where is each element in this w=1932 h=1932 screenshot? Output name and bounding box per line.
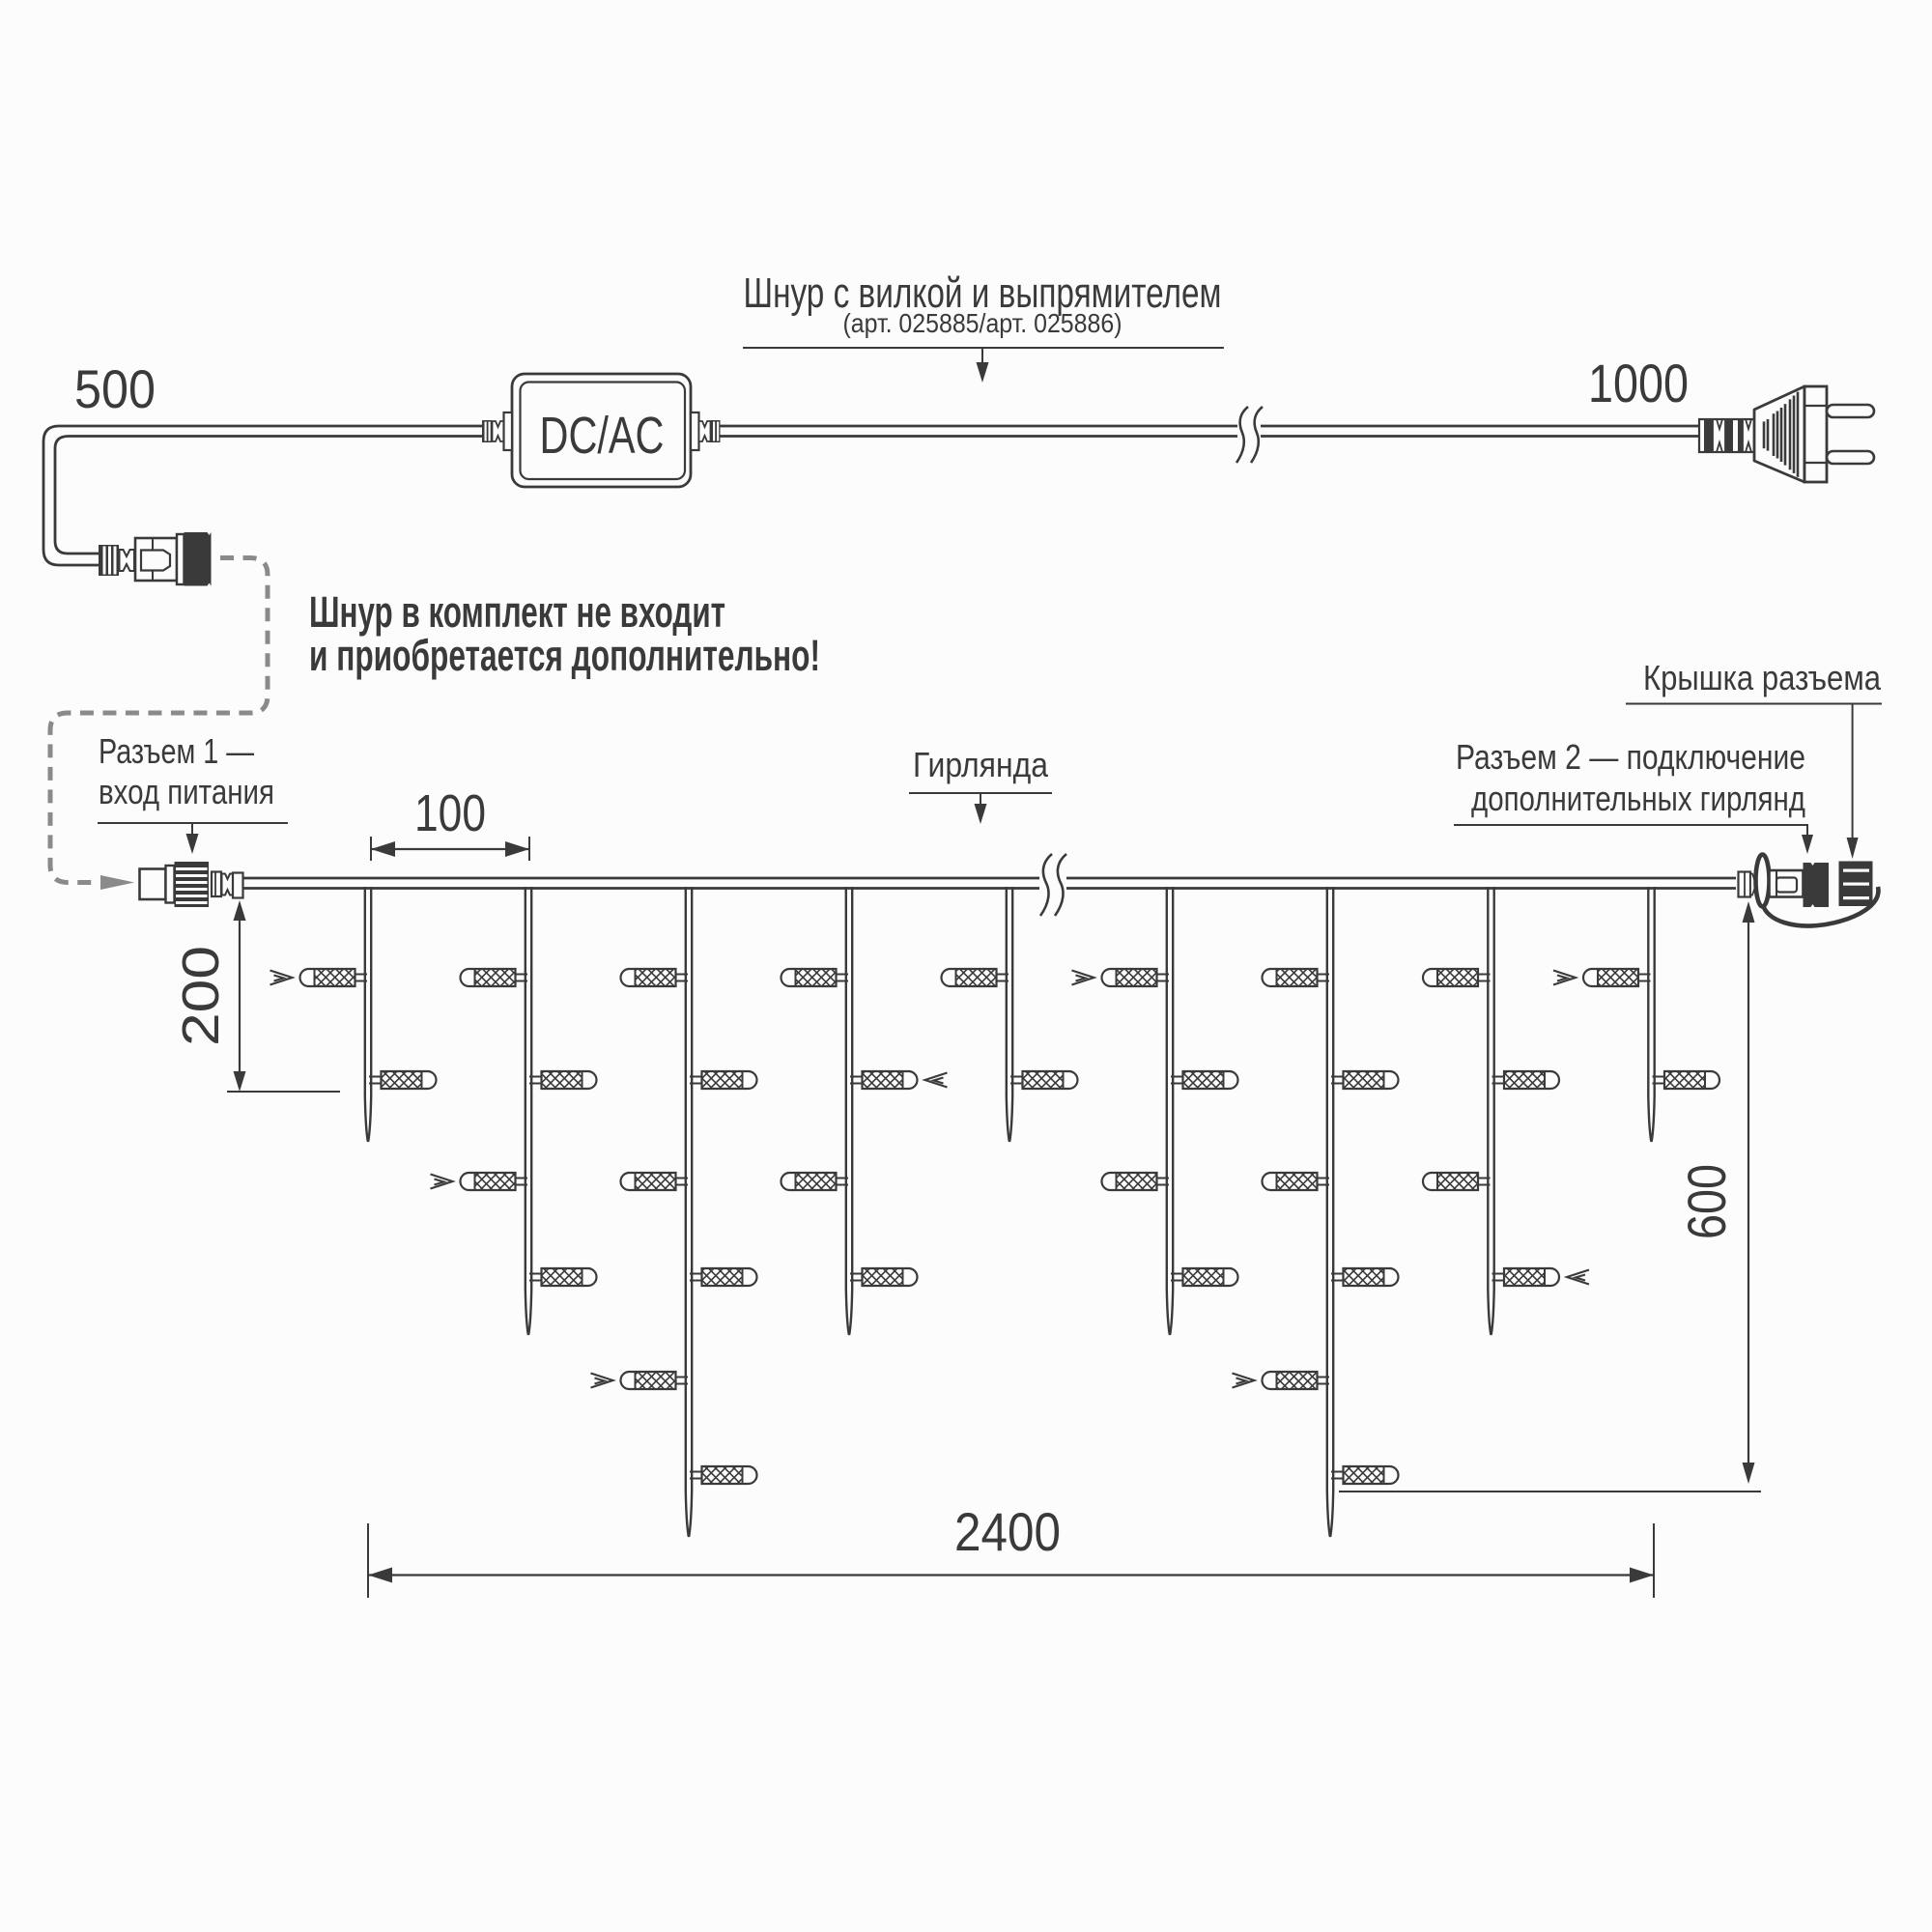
svg-text:Крышка разъема: Крышка разъема xyxy=(1643,658,1882,697)
svg-text:500: 500 xyxy=(74,358,156,419)
svg-text:100: 100 xyxy=(414,784,486,842)
svg-text:1000: 1000 xyxy=(1588,353,1689,413)
svg-text:Шнур в комплект не входит: Шнур в комплект не входит xyxy=(309,587,725,637)
svg-text:Гирлянда: Гирлянда xyxy=(913,745,1049,784)
svg-text:2400: 2400 xyxy=(954,1501,1061,1562)
svg-text:Разъем 1 —: Разъем 1 — xyxy=(99,731,254,771)
svg-text:Разъем 2 — подключение: Разъем 2 — подключение xyxy=(1456,737,1805,777)
svg-text:DC/AC: DC/AC xyxy=(540,407,665,465)
svg-text:(арт. 025885/арт. 025886): (арт. 025885/арт. 025886) xyxy=(843,308,1122,338)
svg-text:вход питания: вход питания xyxy=(99,772,274,811)
svg-text:200: 200 xyxy=(172,946,230,1046)
svg-text:дополнительных гирлянд: дополнительных гирлянд xyxy=(1471,779,1805,818)
svg-text:и приобретается дополнительно!: и приобретается дополнительно! xyxy=(309,631,820,680)
svg-text:600: 600 xyxy=(1676,1164,1737,1239)
